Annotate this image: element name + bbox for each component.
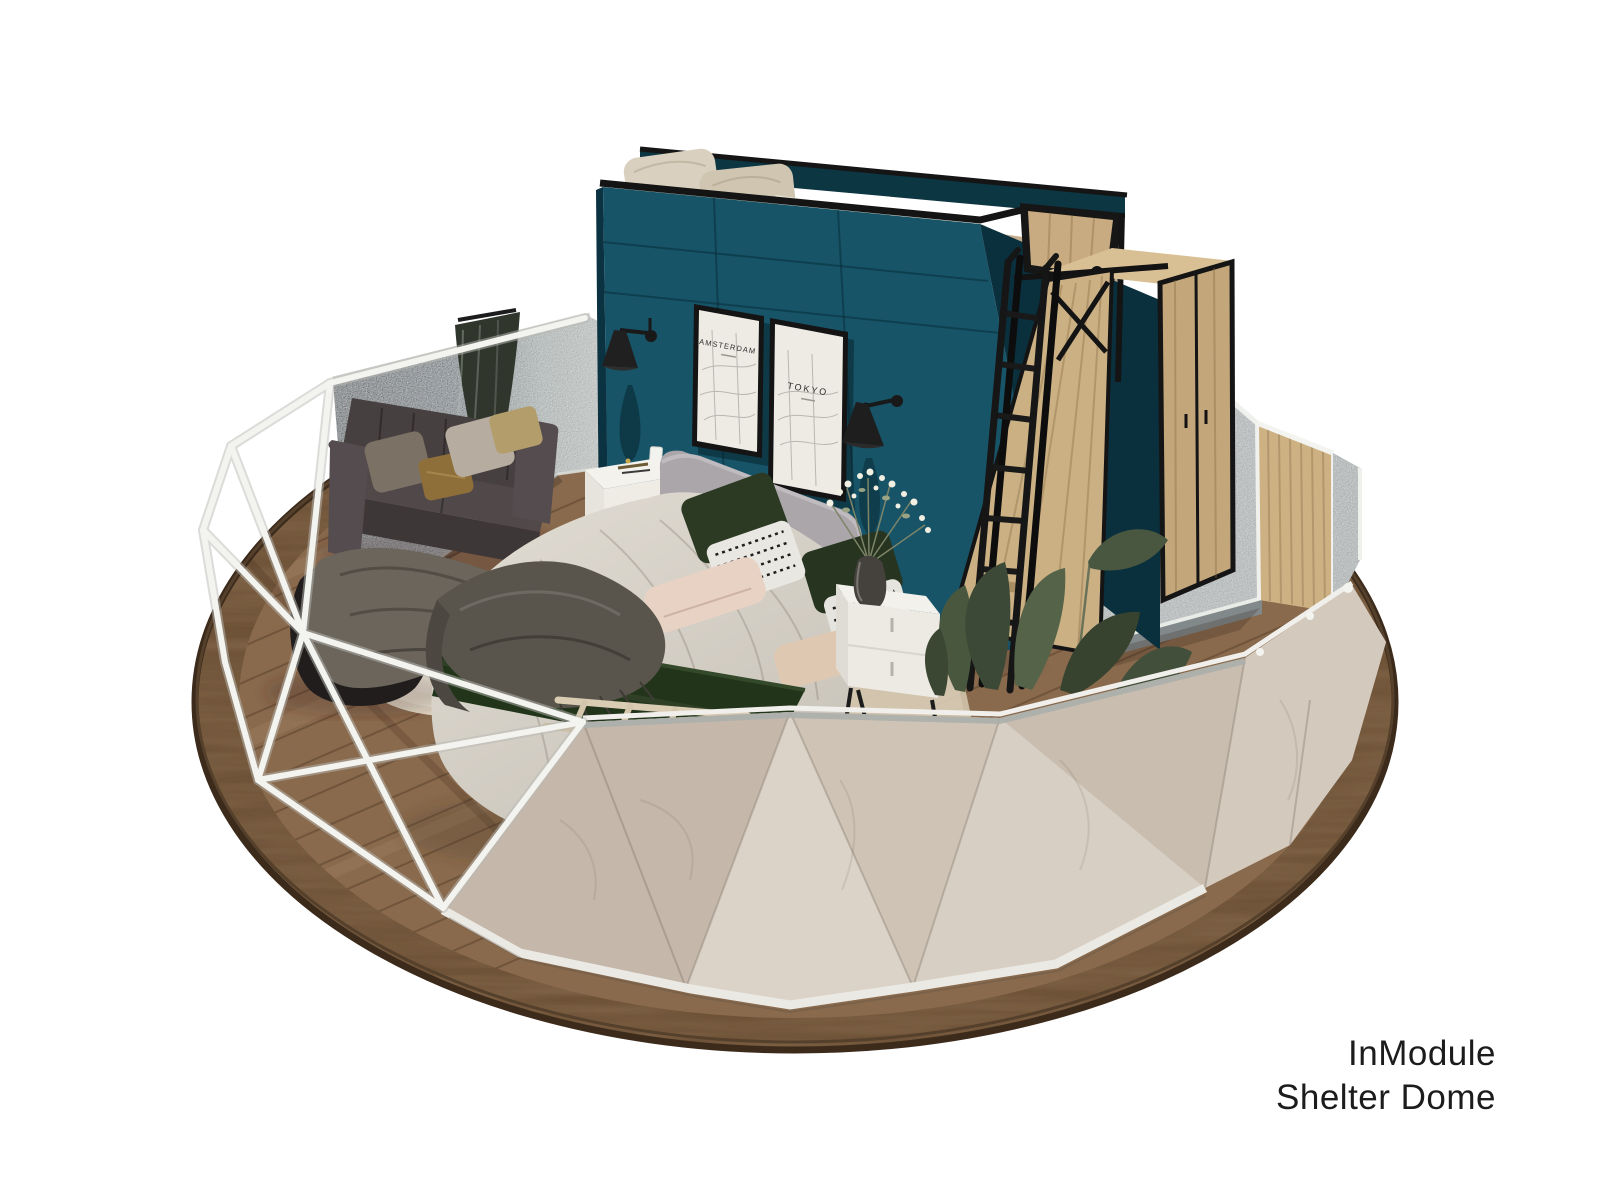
shelter-dome-product-render: AMSTERDAM TOKYO (0, 0, 1600, 1200)
poster-amsterdam: AMSTERDAM (692, 304, 770, 466)
product-caption: InModule Shelter Dome (1276, 1032, 1496, 1120)
brand-name: InModule (1276, 1032, 1496, 1076)
poster-tokyo: TOKYO (768, 318, 854, 510)
product-name: Shelter Dome (1276, 1076, 1496, 1120)
render-illustration: AMSTERDAM TOKYO (0, 0, 1600, 1200)
